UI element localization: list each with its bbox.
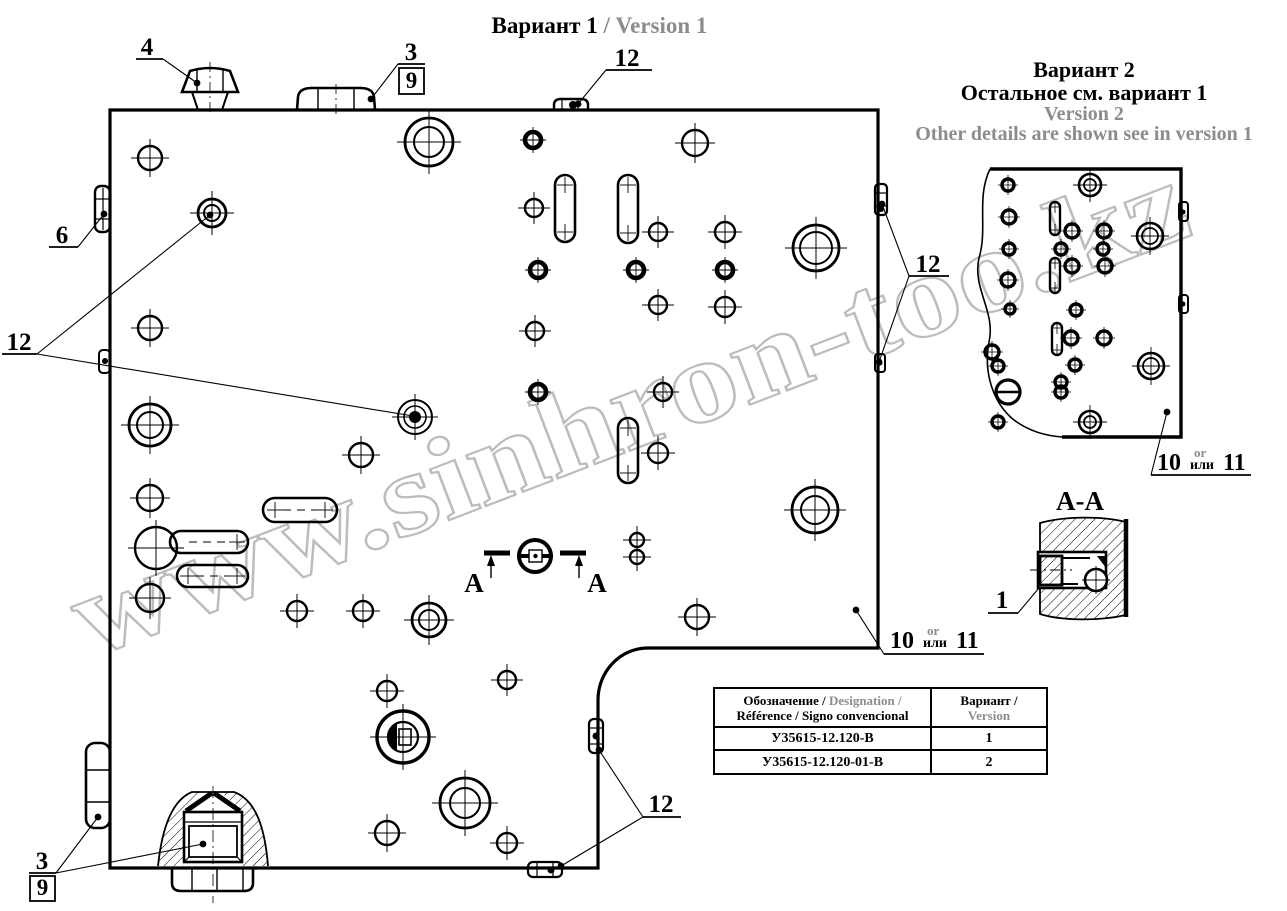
top-plug-fitting (554, 99, 588, 110)
slotted-boss-large (370, 704, 436, 770)
designation-value: У35615-12.120-В (715, 728, 932, 749)
table-header-variant: Вариант / Version (932, 689, 1046, 726)
callout: 6 (49, 211, 107, 249)
callout-number: 10 (890, 628, 914, 654)
callout-leader (578, 70, 606, 104)
callout-boxed-number: 9 (406, 68, 418, 93)
callout-number: 1 (996, 587, 1009, 614)
callout-number: 4 (141, 34, 154, 61)
callout-leader-dot (596, 747, 603, 754)
variant2-title: Вариант 2 Остальное см. вариант 1 Versio… (878, 58, 1287, 144)
table-header-designation: Обозначение / Designation / Référence / … (715, 689, 932, 726)
callout-leader (561, 817, 643, 866)
table-row: У35615-12.120-В 1 (715, 728, 1046, 751)
callout-leader-dot (207, 212, 214, 219)
variant2-title-en-line2: Other details are shown see in version 1 (878, 124, 1287, 144)
callout-leader (37, 354, 413, 416)
callout-leader-dot (876, 359, 883, 366)
callout: 12 (575, 45, 652, 107)
callout-number: 11 (956, 628, 979, 654)
callout-leader-dot (200, 841, 207, 848)
variant-value: 1 (932, 728, 1046, 749)
callout-leader (371, 64, 398, 99)
callout-leader-dot (194, 80, 201, 87)
callout-number: 3 (36, 848, 49, 875)
callout-ili-label: или (923, 636, 947, 651)
callout-leader-dot (95, 814, 102, 821)
callout-leader-dot (575, 101, 582, 108)
left-small-plug (99, 350, 110, 373)
callout-leader-dot (1164, 409, 1171, 416)
section-marker-letter-right: А (587, 568, 607, 598)
section-title: А-А (1056, 486, 1104, 516)
designation-table: Обозначение / Designation / Référence / … (713, 687, 1048, 775)
drawing-page: www.sinhron-too.kz (0, 0, 1287, 911)
header-variant-ru: Вариант / (960, 693, 1017, 708)
callout-leader (1018, 588, 1039, 613)
slotted-plug-center (517, 540, 553, 572)
callout: 12 (558, 747, 681, 870)
callout-number: 12 (916, 251, 941, 278)
designation-value: У35615-12.120-01-В (715, 751, 932, 773)
callout-leader-dot (368, 96, 375, 103)
header-designation-en: Designation / (829, 693, 902, 708)
header-designation-fr-es: Référence / Signo convencional (737, 708, 909, 723)
header-variant-en: Version (968, 708, 1010, 723)
callout-number: 10 (1157, 450, 1181, 476)
callout-number: 12 (7, 329, 32, 356)
section-aa-view (1030, 518, 1126, 620)
callout: 4 (136, 34, 200, 86)
callout: 10orили11 (1151, 409, 1251, 476)
top-bolt-fitting (182, 62, 238, 113)
callout-leader-dot (558, 863, 565, 870)
left-plug-fitting (95, 186, 110, 232)
callout-leader-dot (853, 607, 860, 614)
variant1-title-ru: Вариант 1 (492, 13, 598, 38)
callout: 39 (368, 39, 425, 102)
callout-leader-dot (410, 413, 417, 420)
header-designation-ru: Обозначение / (743, 693, 829, 708)
callout-boxed-number: 9 (37, 875, 49, 900)
variant2-title-ru-line2: Остальное см. вариант 1 (878, 81, 1287, 104)
section-marker-letter-left: А (464, 568, 484, 598)
variant2-title-ru-line1: Вариант 2 (878, 58, 1287, 81)
callout-number: 3 (405, 39, 418, 66)
callout-leader (78, 214, 104, 247)
callout-ili-label: или (1190, 458, 1214, 473)
callout-number: 6 (56, 222, 69, 249)
callout-number: 12 (615, 45, 640, 72)
callout-number: 11 (1223, 450, 1246, 476)
callout: 1 (988, 587, 1039, 614)
bottom-hex-nut (172, 868, 253, 891)
callout-leader (56, 817, 98, 873)
variant1-title: Вариант 1 / Version 1 (427, 13, 772, 39)
variant2-title-en-line1: Version 2 (878, 104, 1287, 124)
table-row: У35615-12.120-01-В 2 (715, 751, 1046, 773)
fragment-slotted-plug (996, 380, 1020, 404)
callout-leader-dot (101, 211, 108, 218)
callout-number: 12 (649, 791, 674, 818)
variant-value: 2 (932, 751, 1046, 773)
variant1-title-en: / Version 1 (598, 13, 708, 38)
callout-leader (599, 750, 643, 817)
callout-leader-dot (879, 201, 886, 208)
